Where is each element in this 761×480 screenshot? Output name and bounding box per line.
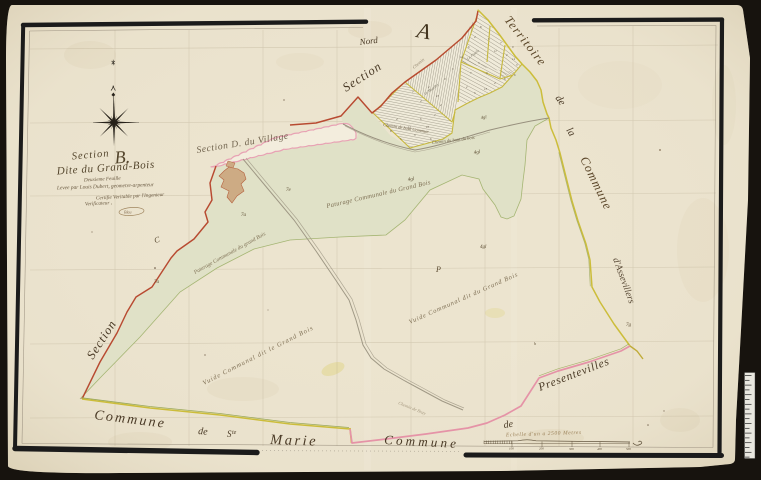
svg-text:7a: 7a bbox=[241, 213, 247, 218]
svg-text:P: P bbox=[435, 265, 441, 274]
svg-text:Verificateur ,: Verificateur , bbox=[85, 199, 112, 207]
svg-text:Marie: Marie bbox=[269, 432, 318, 450]
svg-text:200: 200 bbox=[539, 447, 544, 451]
svg-text:de: de bbox=[198, 426, 209, 438]
svg-text:100: 100 bbox=[509, 447, 514, 451]
svg-text:400: 400 bbox=[597, 447, 602, 451]
svg-text:10: 10 bbox=[426, 125, 430, 129]
svg-text:12: 12 bbox=[408, 125, 412, 129]
svg-text:13: 13 bbox=[484, 87, 488, 91]
svg-text:500: 500 bbox=[626, 447, 631, 451]
svg-text:Blau: Blau bbox=[124, 210, 132, 215]
svg-text:7a: 7a bbox=[154, 280, 160, 285]
svg-text:15: 15 bbox=[436, 94, 440, 98]
svg-text:300: 300 bbox=[569, 447, 574, 451]
svg-text:4gl: 4gl bbox=[480, 245, 487, 250]
svg-text:7e: 7e bbox=[286, 188, 292, 193]
svg-text:14: 14 bbox=[512, 57, 516, 61]
svg-text:te: te bbox=[232, 430, 237, 436]
svg-text:h: h bbox=[534, 341, 536, 346]
svg-text:12: 12 bbox=[460, 55, 464, 59]
svg-text:7g: 7g bbox=[626, 323, 632, 328]
